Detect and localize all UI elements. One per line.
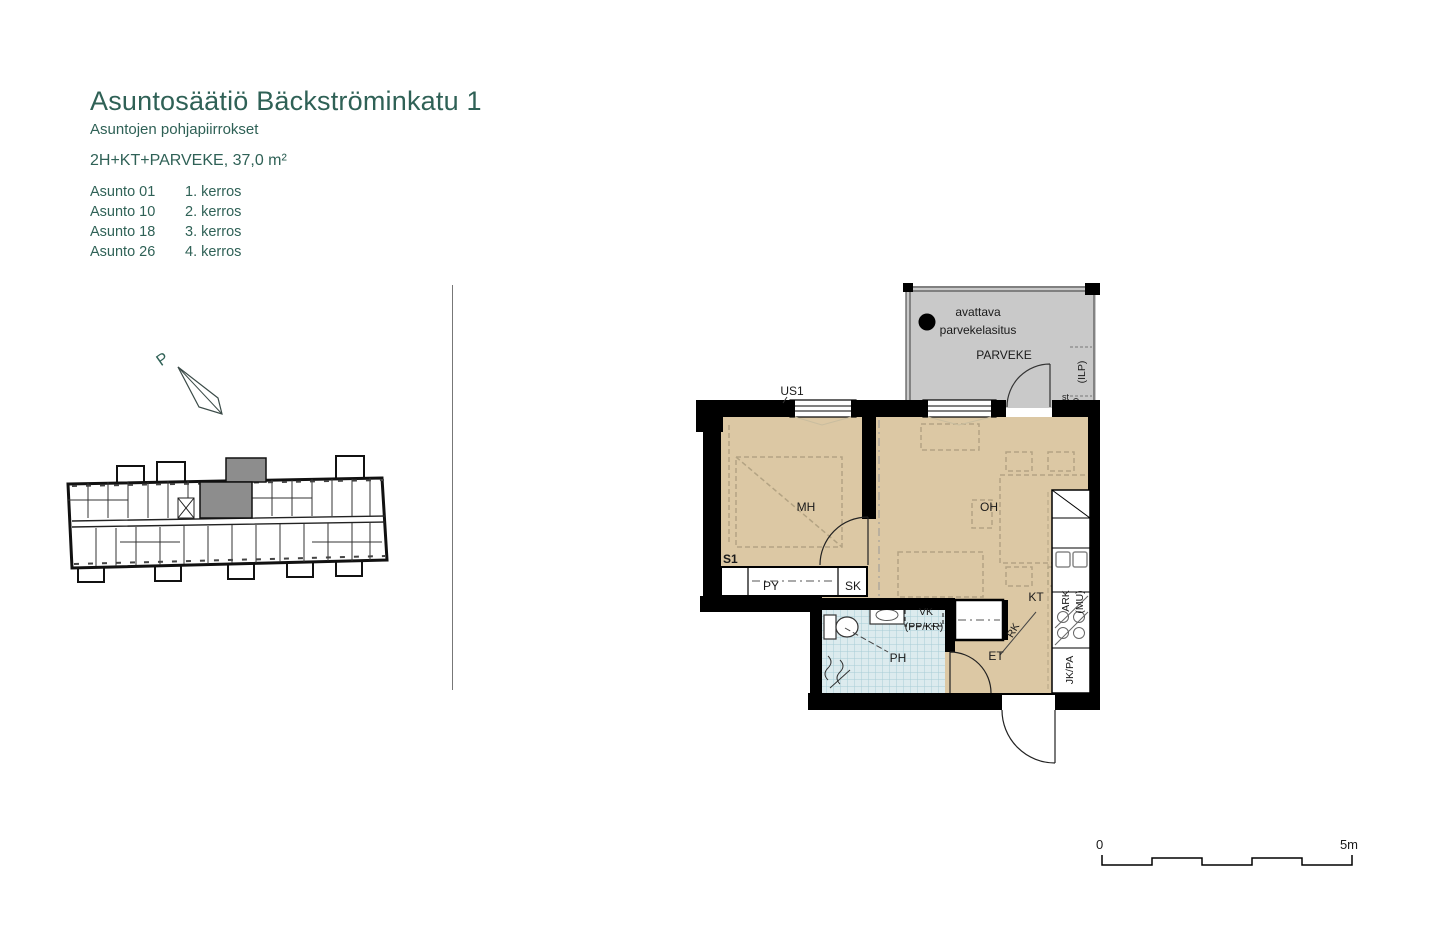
washer-label-line2: (PP/KR) xyxy=(905,621,944,633)
drawing-sheet: Asuntosäätiö Bäckströminkatu 1 Asuntojen… xyxy=(0,0,1440,925)
page-subtitle: Asuntojen pohjapiirrokset xyxy=(90,121,482,138)
closet-sk-label: SK xyxy=(845,579,861,593)
balcony-label: PARVEKE xyxy=(976,348,1032,362)
bedroom-label: MH xyxy=(797,500,816,514)
apartment-type: 2H+KT+PARVEKE, 37,0 m² xyxy=(90,152,482,170)
scale-max-label: 5m xyxy=(1340,837,1358,852)
apartment-floor-plan: avattava parvekelasitus PARVEKE (ILP) st xyxy=(690,275,1110,770)
unit-name: Asunto 26 xyxy=(90,242,185,262)
ilp-label: (ILP) xyxy=(1076,361,1088,384)
unit-list: Asunto 01 1. kerros Asunto 10 2. kerros … xyxy=(90,182,482,262)
entry-door-swing xyxy=(1002,710,1055,763)
closet-py-label: PY xyxy=(763,579,779,593)
glazing-note-line1: avattava xyxy=(955,305,1001,319)
unit-row: Asunto 01 1. kerros xyxy=(90,182,482,202)
unit-row: Asunto 26 4. kerros xyxy=(90,242,482,262)
toilet-symbol xyxy=(824,615,858,639)
unit-row: Asunto 10 2. kerros xyxy=(90,202,482,222)
unit-floor: 4. kerros xyxy=(185,242,241,262)
building-overview-plan xyxy=(60,442,390,592)
glazing-note-line2: parvekelasitus xyxy=(940,323,1017,337)
north-arrow-icon: P xyxy=(145,335,235,425)
overview-highlight-balcony xyxy=(226,458,266,482)
balcony: avattava parvekelasitus PARVEKE (ILP) st xyxy=(903,283,1100,408)
overview-stair-core xyxy=(178,498,194,518)
scale-bar: 0 5m xyxy=(1090,833,1370,878)
title-block: Asuntosäätiö Bäckströminkatu 1 Asuntojen… xyxy=(90,86,482,262)
us1-label: US1 xyxy=(780,384,804,398)
north-label: P xyxy=(153,350,171,370)
page-title: Asuntosäätiö Bäckströminkatu 1 xyxy=(90,86,482,117)
entry-door xyxy=(1002,695,1055,763)
living-room-label: OH xyxy=(980,500,998,514)
mu-label: (MU) xyxy=(1074,590,1086,613)
unit-floor: 3. kerros xyxy=(185,222,241,242)
entry-label: ET xyxy=(988,649,1004,663)
balcony-column xyxy=(919,314,936,331)
unit-name: Asunto 18 xyxy=(90,222,185,242)
scale-bar-line xyxy=(1102,855,1352,865)
unit-floor: 2. kerros xyxy=(185,202,241,222)
ark-label: ARK xyxy=(1060,590,1072,612)
unit-row: Asunto 18 3. kerros xyxy=(90,222,482,242)
s1-label: S1 xyxy=(723,552,738,566)
unit-floor: 1. kerros xyxy=(185,182,241,202)
overview-highlight-apartment xyxy=(200,482,252,518)
unit-name: Asunto 10 xyxy=(90,202,185,222)
unit-name: Asunto 01 xyxy=(90,182,185,202)
sheet-divider-line xyxy=(452,285,453,690)
scale-zero-label: 0 xyxy=(1096,837,1103,852)
washer-label-line1: VK xyxy=(919,606,933,618)
bathroom-label: PH xyxy=(890,651,907,665)
fridge-label: JK/PA xyxy=(1064,656,1076,684)
kitchen-label: KT xyxy=(1028,590,1044,604)
